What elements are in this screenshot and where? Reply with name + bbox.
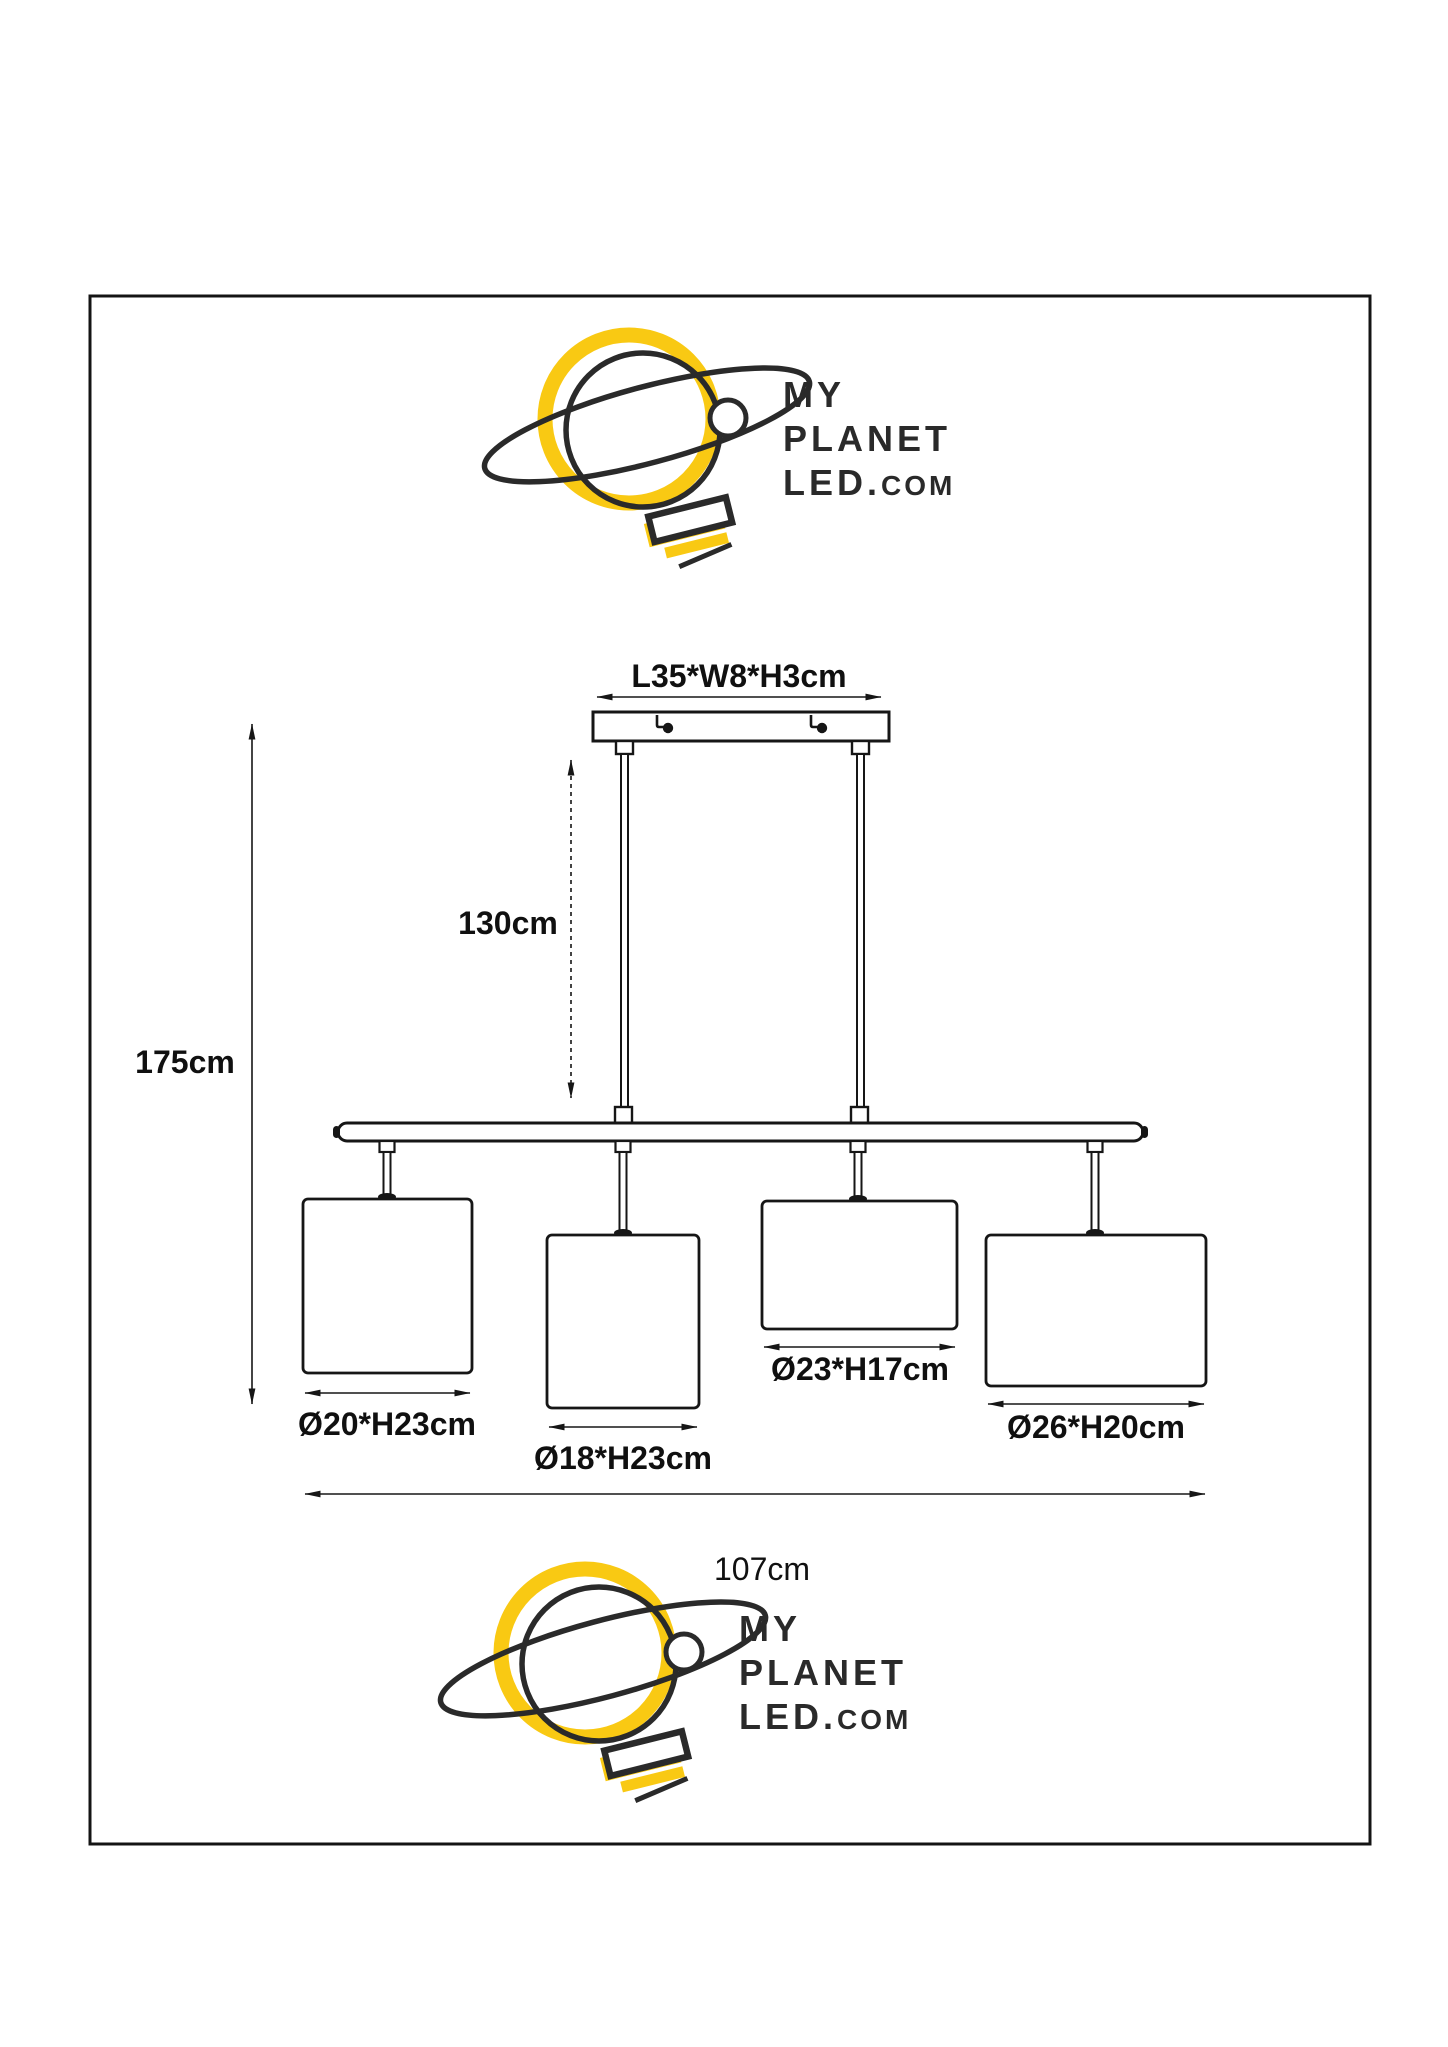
total-width-dimension-label: 107cm	[714, 1551, 810, 1587]
lamp-shade-1	[303, 1199, 472, 1373]
canopy-dimension-label: L35*W8*H3cm	[631, 658, 846, 694]
sheet-border	[90, 296, 1370, 1844]
bar-connector-right	[851, 1107, 868, 1123]
lamp-shade-3	[762, 1201, 957, 1329]
shade-hanger-2	[614, 1141, 632, 1237]
shade1-dimension-label: Ø20*H23cm	[298, 1406, 476, 1442]
brand-logo-bottom	[431, 1569, 911, 1806]
shade-hanger-1	[378, 1141, 396, 1201]
ceiling-plate	[593, 712, 889, 741]
shade3-dimension-label: Ø23*H17cm	[771, 1351, 949, 1387]
suspension-rod-right	[857, 754, 864, 1107]
canopy-connector-right	[852, 741, 869, 754]
suspension-rod-left	[621, 754, 628, 1107]
suspension-dimension-label: 130cm	[458, 905, 558, 941]
pendant-bar	[338, 1123, 1143, 1141]
pendant-bar-endcap-left	[333, 1126, 340, 1138]
bar-connector-left	[615, 1107, 632, 1123]
shade-hanger-4	[1086, 1141, 1104, 1237]
brand-logo-top	[475, 335, 955, 572]
canopy-connector-left	[616, 741, 633, 754]
lamp-shade-4	[986, 1235, 1206, 1386]
lamp-shade-2	[547, 1235, 699, 1408]
pendant-bar-endcap-right	[1141, 1126, 1148, 1138]
total-height-dimension-label: 175cm	[135, 1044, 235, 1080]
shade2-dimension-label: Ø18*H23cm	[534, 1440, 712, 1476]
drawing-sheet: MY PLANET LED.COM L35*W8*H3cm 130cm 175c…	[0, 0, 1448, 2047]
shade-hanger-3	[849, 1141, 867, 1203]
shade4-dimension-label: Ø26*H20cm	[1007, 1409, 1185, 1445]
